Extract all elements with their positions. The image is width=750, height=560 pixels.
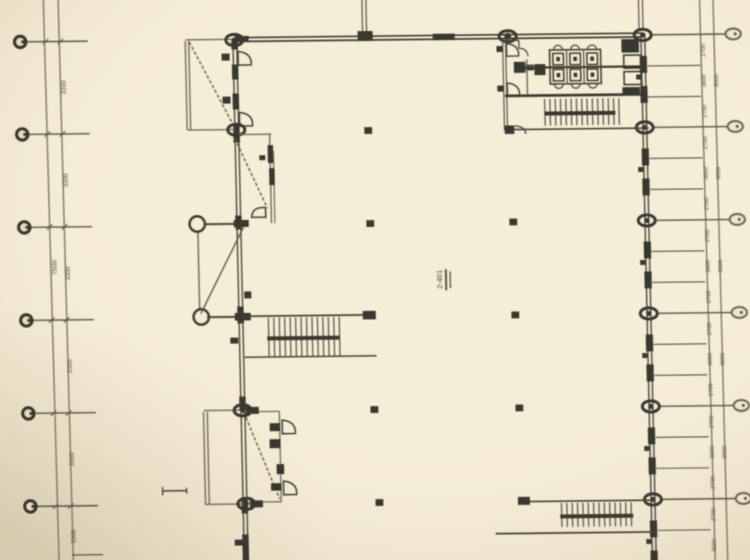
svg-text:3600: 3600: [702, 74, 708, 87]
svg-text:9000: 9000: [722, 446, 728, 459]
svg-text:3300: 3300: [69, 452, 76, 466]
svg-text:3600: 3600: [710, 446, 716, 459]
svg-text:2700: 2700: [704, 197, 710, 210]
svg-text:2700: 2700: [708, 383, 714, 396]
svg-text:2700: 2700: [702, 105, 708, 118]
svg-text:2700: 2700: [711, 508, 717, 521]
svg-text:9000: 9000: [718, 260, 724, 273]
svg-text:2700: 2700: [710, 476, 716, 489]
svg-text:9000: 9000: [720, 353, 726, 366]
svg-text:2-401: 2-401: [435, 270, 444, 289]
svg-text:2700: 2700: [709, 415, 715, 428]
svg-text:3600: 3600: [712, 539, 718, 552]
svg-text:3600: 3600: [706, 260, 712, 273]
svg-text:2700: 2700: [705, 229, 711, 242]
svg-text:2700: 2700: [701, 44, 707, 57]
svg-text:9000: 9000: [714, 74, 720, 87]
svg-text:3300: 3300: [65, 266, 72, 280]
svg-text:3300: 3300: [63, 173, 70, 187]
svg-text:3600: 3600: [708, 353, 714, 366]
svg-text:2700: 2700: [706, 290, 712, 303]
svg-text:3600: 3600: [704, 167, 710, 180]
svg-text:3300: 3300: [61, 80, 68, 94]
svg-text:3300: 3300: [70, 529, 77, 543]
svg-text:7500: 7500: [51, 260, 58, 275]
svg-text:3300: 3300: [67, 359, 74, 373]
svg-text:2700: 2700: [707, 322, 713, 335]
svg-text:2700: 2700: [703, 136, 709, 149]
svg-text:9000: 9000: [716, 167, 722, 180]
